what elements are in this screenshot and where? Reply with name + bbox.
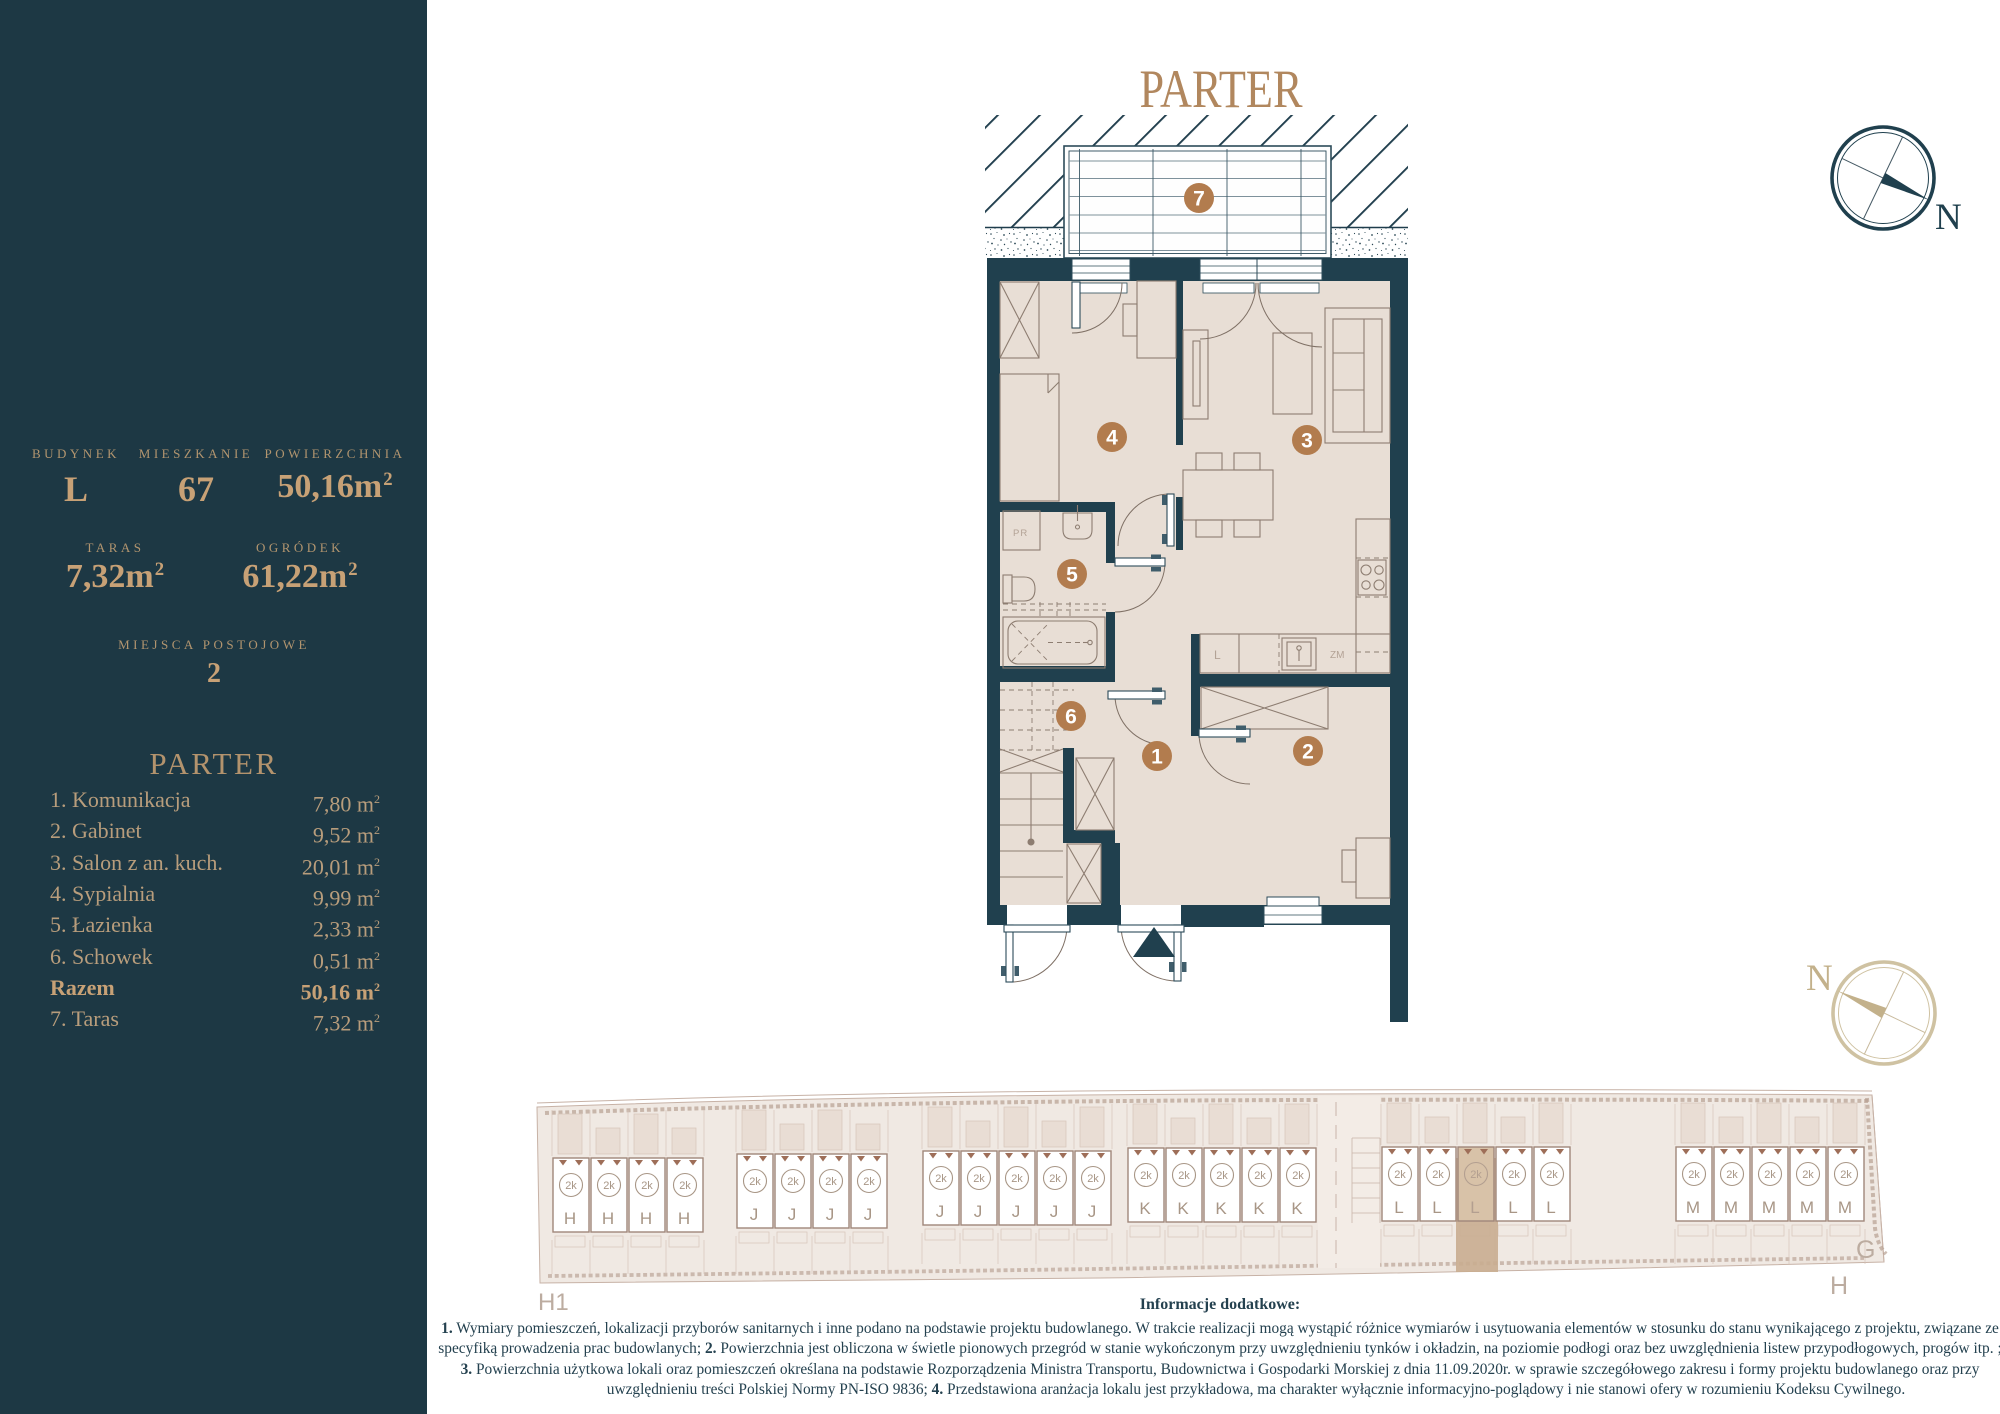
svg-text:N: N [1935,197,1962,238]
svg-text:M: M [1800,1198,1814,1217]
svg-text:2k: 2k [1087,1173,1099,1185]
svg-text:M: M [1686,1198,1700,1217]
svg-text:J: J [750,1205,759,1224]
svg-text:K: K [1177,1199,1189,1218]
svg-text:2k: 2k [1508,1169,1520,1181]
svg-text:2k: 2k [1688,1169,1700,1181]
svg-text:2k: 2k [1216,1170,1228,1182]
svg-text:M: M [1762,1198,1776,1217]
svg-text:J: J [826,1205,835,1224]
svg-text:L: L [1508,1198,1517,1217]
svg-text:K: K [1139,1199,1151,1218]
svg-text:J: J [864,1205,873,1224]
svg-text:5: 5 [1066,564,1078,587]
svg-text:2k: 2k [1178,1170,1190,1182]
svg-text:2k: 2k [1470,1169,1482,1181]
svg-text:H: H [640,1209,652,1228]
svg-text:H: H [602,1209,614,1228]
svg-text:2k: 2k [1394,1169,1406,1181]
svg-text:N: N [1806,958,1833,999]
svg-text:2k: 2k [1049,1173,1061,1185]
svg-text:J: J [788,1205,797,1224]
svg-text:2k: 2k [1011,1173,1023,1185]
svg-text:2k: 2k [565,1180,577,1192]
svg-text:J: J [974,1202,983,1221]
svg-text:2k: 2k [1726,1169,1738,1181]
svg-text:M: M [1838,1198,1852,1217]
svg-text:J: J [1088,1202,1097,1221]
svg-text:2k: 2k [1840,1169,1852,1181]
svg-text:M: M [1724,1198,1738,1217]
svg-text:L: L [1432,1198,1441,1217]
svg-text:4: 4 [1106,427,1118,450]
svg-text:L: L [1470,1198,1479,1217]
svg-text:2k: 2k [1546,1169,1558,1181]
svg-text:L: L [1394,1198,1403,1217]
svg-text:K: K [1253,1199,1265,1218]
svg-text:2k: 2k [1432,1169,1444,1181]
svg-text:J: J [1050,1202,1059,1221]
svg-text:7: 7 [1193,188,1205,211]
svg-text:2k: 2k [749,1176,761,1188]
svg-text:2k: 2k [787,1176,799,1188]
svg-text:2k: 2k [1764,1169,1776,1181]
svg-text:2k: 2k [603,1180,615,1192]
svg-text:2k: 2k [641,1180,653,1192]
svg-text:2k: 2k [863,1176,875,1188]
svg-text:K: K [1215,1199,1227,1218]
svg-text:G: G [1856,1236,1875,1264]
svg-text:J: J [1012,1202,1021,1221]
svg-text:2k: 2k [1254,1170,1266,1182]
svg-text:L: L [1214,648,1221,662]
svg-text:2k: 2k [825,1176,837,1188]
svg-text:2k: 2k [935,1173,947,1185]
svg-text:J: J [936,1202,945,1221]
svg-text:2k: 2k [1140,1170,1152,1182]
svg-text:H: H [678,1209,690,1228]
svg-text:2k: 2k [1802,1169,1814,1181]
svg-text:2k: 2k [1292,1170,1304,1182]
svg-text:H: H [564,1209,576,1228]
svg-text:ZM: ZM [1330,650,1344,661]
svg-text:2: 2 [1302,741,1314,764]
svg-text:2k: 2k [973,1173,985,1185]
svg-text:6: 6 [1065,706,1077,729]
svg-text:2k: 2k [679,1180,691,1192]
svg-text:L: L [1546,1198,1555,1217]
svg-text:3: 3 [1301,430,1313,453]
svg-text:PR: PR [1013,528,1028,539]
svg-text:K: K [1291,1199,1303,1218]
svg-text:1: 1 [1151,746,1163,769]
